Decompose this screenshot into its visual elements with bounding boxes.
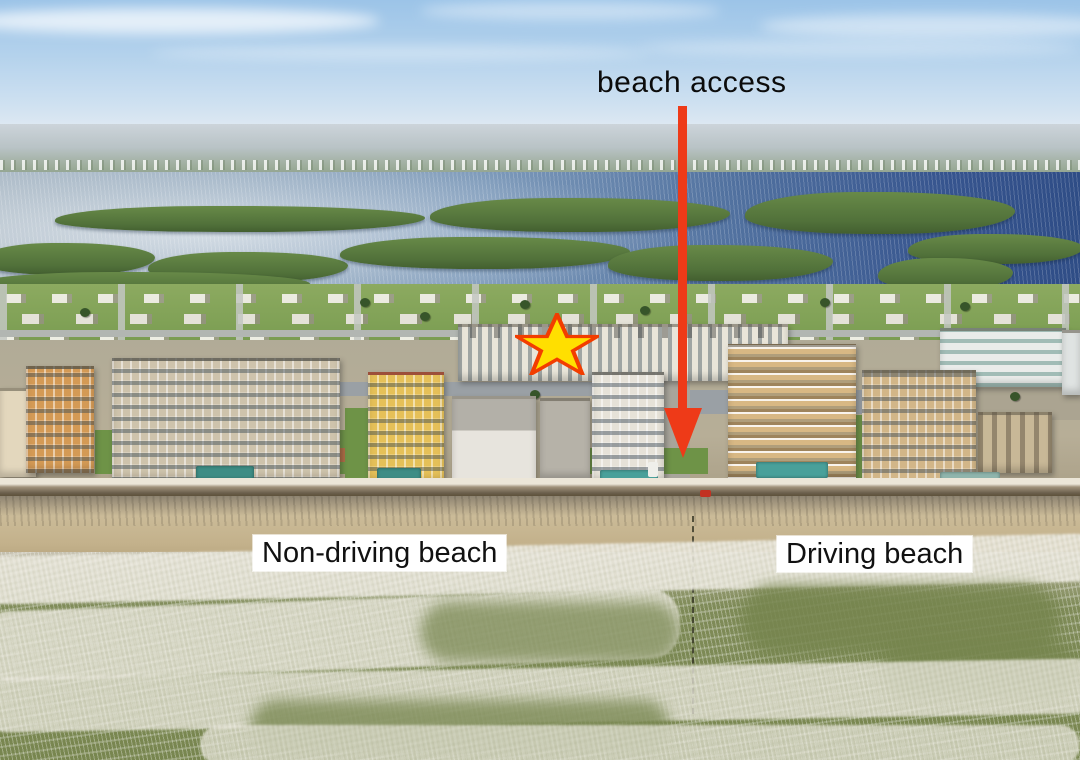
tree: [420, 312, 430, 321]
driving-beach-label: Driving beach: [777, 536, 972, 572]
cloud: [640, 40, 1080, 56]
beach-access-arrow-icon: [664, 408, 702, 458]
building-gray-roof: [540, 398, 590, 479]
star-polygon: [517, 314, 598, 373]
palm-tree: [1010, 392, 1020, 401]
building-large-beige-condo: [112, 358, 340, 481]
pool: [756, 462, 828, 478]
far-shoreline-houses: [0, 160, 1080, 170]
beach-access-label: beach access: [597, 66, 786, 100]
building-white-condo: [452, 396, 536, 491]
tree: [360, 298, 370, 307]
seawall: [0, 478, 1080, 498]
white-van: [648, 462, 658, 477]
aerial-beach-photo: beach access Non-driving beach Driving b…: [0, 0, 1080, 760]
building-tan-balcony-tower: [728, 344, 856, 479]
building-back-right-2: [1062, 330, 1080, 395]
tree: [520, 300, 530, 309]
non-driving-beach-label: Non-driving beach: [253, 535, 506, 571]
island: [55, 206, 425, 232]
cloud: [420, 2, 720, 20]
tree: [80, 308, 90, 317]
beach-access-arrow-shaft: [678, 106, 687, 410]
tree: [640, 306, 650, 315]
building-low-motel: [978, 412, 1052, 473]
red-car: [700, 490, 711, 497]
island: [340, 237, 630, 269]
building-yellow-condo: [368, 372, 444, 483]
cloud: [150, 46, 650, 60]
foam-band: [200, 725, 1080, 760]
tree: [960, 302, 970, 311]
island: [745, 192, 1015, 234]
star-marker-icon: [515, 313, 599, 375]
island: [608, 245, 833, 281]
green-water-patch: [420, 602, 680, 662]
lawn: [345, 408, 369, 478]
tree: [820, 298, 830, 307]
building-orange-tower: [26, 366, 94, 473]
